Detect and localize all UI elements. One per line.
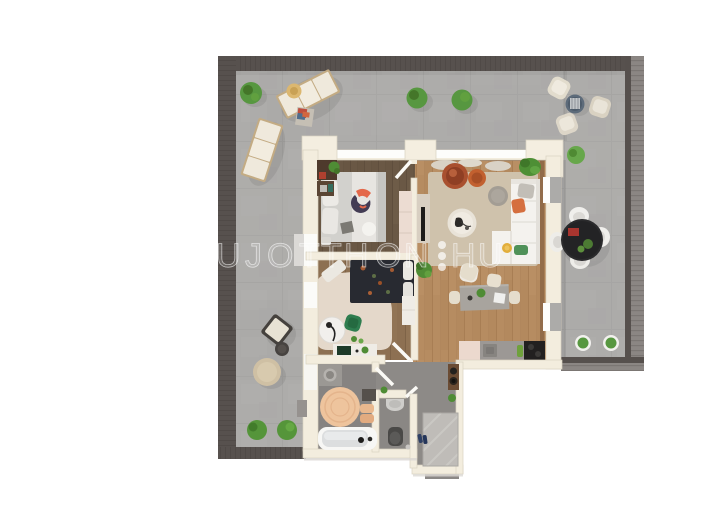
- svg-text:N: N: [404, 237, 429, 275]
- svg-text:T: T: [321, 237, 342, 275]
- svg-text:O: O: [375, 237, 401, 275]
- svg-text:T: T: [299, 237, 320, 275]
- svg-text:U: U: [478, 237, 503, 275]
- svg-text:H: H: [451, 237, 476, 275]
- svg-text:U: U: [216, 237, 241, 275]
- svg-text:O: O: [267, 237, 293, 275]
- svg-text:J: J: [245, 237, 262, 275]
- svg-text:H: H: [344, 237, 369, 275]
